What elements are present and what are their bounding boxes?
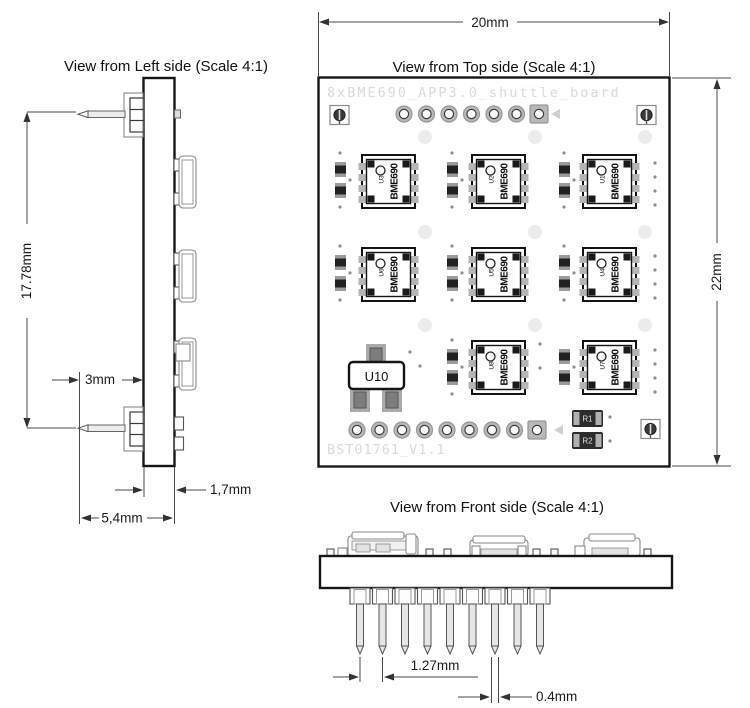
sensor-ref: U1	[600, 175, 607, 184]
pcb-edge-left-view	[144, 78, 175, 466]
front-connector-right	[575, 534, 640, 556]
sensor-ref: U2	[489, 175, 496, 184]
dim-0_4mm: 0.4mm	[458, 657, 577, 704]
left-view-title: View from Left side (Scale 4:1)	[64, 58, 268, 75]
front-pin-row	[350, 588, 550, 654]
dim-label-pin-pitch: 1.27mm	[411, 658, 460, 673]
dim-1_27mm: 1.27mm	[333, 657, 478, 682]
silkscreen-part-number: BST01761_V1.1	[327, 442, 446, 458]
vent-hole	[376, 259, 385, 268]
dim-17_78mm: 17.78mm	[19, 112, 76, 428]
left-view-bottom-pin-connector	[78, 407, 144, 451]
header-pin-3	[395, 588, 415, 654]
dim-label-pin-span: 17.78mm	[19, 243, 34, 299]
sensor-label: BME690	[500, 256, 511, 293]
vent-hole	[486, 259, 495, 268]
corner-mark-top-right	[637, 106, 656, 125]
vent-hole	[597, 259, 606, 268]
sensor-label: BME690	[500, 163, 511, 200]
resistor-label: R1	[582, 415, 593, 424]
shuttle-board-drawing: View from Left side (Scale 4:1)	[0, 0, 750, 708]
socket-profile-2	[174, 250, 196, 302]
vent-hole	[376, 166, 385, 175]
edge-tab-2	[175, 437, 184, 450]
header-pin-5	[440, 588, 460, 654]
dim-label-overall-depth: 5,4mm	[101, 511, 142, 526]
dim-label-board-height: 22mm	[709, 253, 724, 291]
header-pin-2	[373, 588, 393, 654]
sensor-u2: BME690 U2	[469, 155, 529, 208]
front-connector-left	[338, 532, 418, 556]
header-pin-9	[530, 588, 550, 654]
vent-hole	[597, 166, 606, 175]
top-view-title: View from Top side (Scale 4:1)	[393, 59, 596, 76]
silkscreen-board-name: 8xBME690_APP3.0_shuttle_board	[327, 85, 621, 101]
left-side-view: View from Left side (Scale 4:1)	[19, 58, 268, 526]
sensor-label: BME690	[500, 349, 511, 386]
front-view-title: View from Front side (Scale 4:1)	[390, 499, 604, 516]
resistor-label: R2	[582, 437, 593, 446]
socket-3-detail	[176, 344, 190, 361]
dim-5_4mm: 5,4mm	[81, 511, 173, 526]
header-pin-6	[463, 588, 483, 654]
corner-mark-bottom-right	[641, 420, 660, 439]
sensor-label: BME690	[611, 256, 622, 293]
header-pin-4	[418, 588, 438, 654]
sensor-ref: U4	[600, 268, 607, 277]
vent-hole	[486, 166, 495, 175]
dim-label-board-width: 20mm	[471, 15, 509, 30]
sensor-label: BME690	[390, 256, 401, 293]
dim-label-pin-offset: 3mm	[85, 372, 115, 387]
resistor-r2: R2	[572, 432, 603, 449]
pin-tip	[78, 111, 88, 118]
transistor-ref-label: U10	[365, 369, 389, 384]
socket-profile-1	[174, 156, 196, 208]
sensor-u1: BME690 U1	[580, 155, 640, 208]
dim-22mm: 22mm	[672, 78, 731, 466]
dim-label-pcb-thickness: 1,7mm	[210, 482, 251, 497]
corner-mark-top-left	[330, 106, 349, 125]
sensor-ref: U8	[489, 361, 496, 370]
sensor-ref: U3	[379, 175, 386, 184]
sensor-u8: BME690 U8	[469, 341, 529, 394]
vent-hole	[486, 352, 495, 361]
dim-label-pin-width: 0.4mm	[536, 689, 577, 704]
header-pin-1	[350, 588, 370, 654]
top-side-view: View from Top side (Scale 4:1) 8xBME690_…	[319, 12, 732, 467]
sensor-ref: U5	[489, 268, 496, 277]
sensor-u4: BME690 U4	[580, 248, 640, 301]
sensor-u3: BME690 U3	[359, 155, 419, 208]
sensor-u5: BME690 U5	[469, 248, 529, 301]
front-side-view: View from Front side (Scale 4:1)	[320, 499, 672, 704]
sensor-label: BME690	[390, 163, 401, 200]
edge-tab-1	[175, 417, 184, 430]
header-pin-7	[485, 588, 505, 654]
front-connector-center	[470, 536, 528, 556]
header-pin-8	[508, 588, 528, 654]
sensor-label: BME690	[611, 349, 622, 386]
resistor-r1: R1	[572, 410, 603, 427]
pcb-edge-front-view	[320, 556, 672, 588]
engineering-drawing-page: View from Left side (Scale 4:1)	[0, 0, 750, 708]
sensor-ref: U6	[379, 268, 386, 277]
sensor-ref: U7	[600, 361, 607, 370]
vent-hole	[597, 352, 606, 361]
sensor-u6: BME690 U6	[359, 248, 419, 301]
sensor-label: BME690	[611, 163, 622, 200]
sensor-u7: BME690 U7	[580, 341, 640, 394]
